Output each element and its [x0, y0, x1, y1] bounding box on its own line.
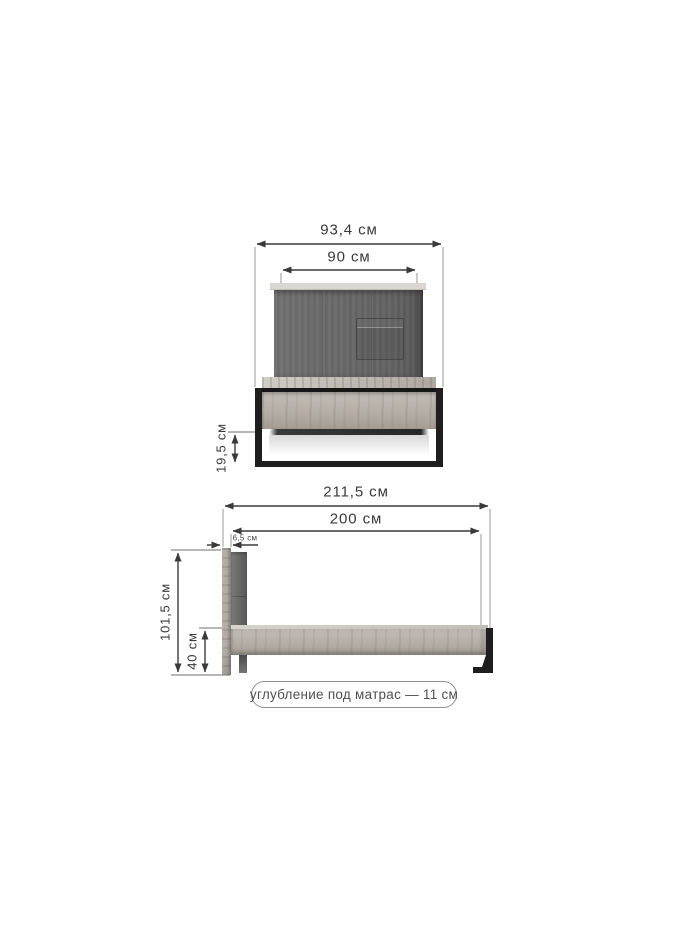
side-total-length-label: 211,5 см [323, 484, 389, 501]
mattress-recess-note: углубление под матрас — 11 см [251, 681, 457, 708]
front-headboard-pocket [356, 318, 404, 360]
front-wood-panel [262, 392, 436, 429]
front-frame-right-leg [436, 388, 443, 467]
front-headboard-pocket-flap [357, 319, 403, 328]
front-frame-bottom-bar [255, 461, 443, 467]
front-headboard-width-label: 90 см [327, 249, 370, 266]
front-headboard-top-cap [270, 283, 426, 290]
side-mattress-length-label: 200 см [330, 511, 382, 528]
side-under-platform-shadow [239, 655, 247, 673]
product-dimension-diagram: 93,4 см 90 см 19,5 см 211,5 см 200 см 6,… [0, 0, 700, 933]
mattress-recess-note-text: углубление под матрас — 11 см [250, 687, 458, 702]
side-headboard-panel [222, 548, 231, 675]
front-bed-top-surface [262, 377, 436, 388]
side-platform-wood [231, 629, 488, 655]
side-total-height-label: 101,5 см [158, 583, 173, 641]
side-headboard-thickness-label: 6,5 см [233, 534, 258, 543]
front-headboard-seam-left [322, 292, 323, 376]
front-total-width-label: 93,4 см [320, 222, 377, 239]
side-headboard-fabric [231, 552, 247, 625]
front-under-bed-shadow [269, 435, 429, 455]
side-headboard-seam [232, 596, 246, 597]
front-frame-left-leg [255, 388, 262, 467]
front-clearance-label: 19,5 см [214, 423, 229, 473]
side-mattress-length-dimension [231, 531, 481, 626]
front-clearance-dimension [228, 432, 258, 462]
side-frame-height-label: 40 см [185, 632, 200, 669]
